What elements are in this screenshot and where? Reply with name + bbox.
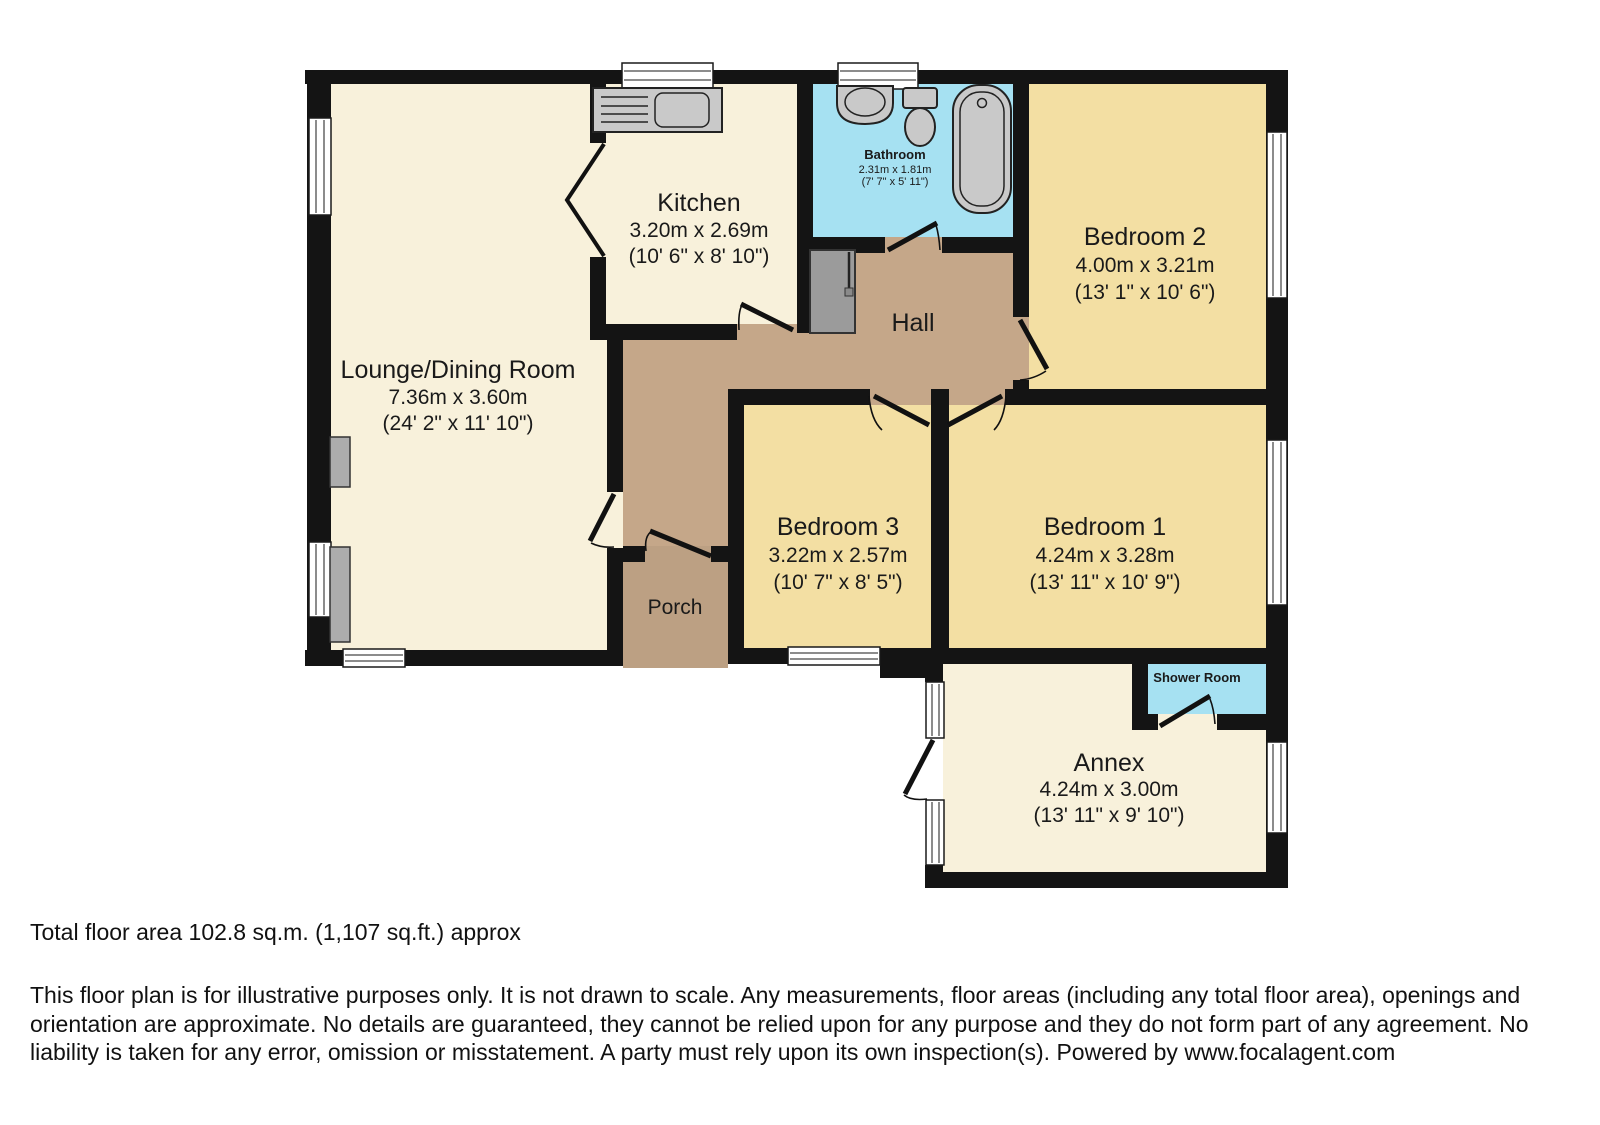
hall-floor-strip [797, 333, 813, 340]
wall-porch-divider-b [711, 546, 728, 562]
lounge-dim-ft: (24' 2" x 11' 10") [383, 412, 534, 435]
hall-floor-corridor [623, 340, 1013, 389]
kitchen-sink-unit [593, 88, 722, 132]
annex-window-west-upper [926, 682, 944, 738]
wall-bedrooms-north-c [1005, 389, 1268, 405]
wall-bedroom3-west [728, 389, 744, 664]
kitchen-dim-m: 3.20m x 2.69m [630, 219, 769, 242]
floorplan-drawing: Lounge/Dining Room 7.36m x 3.60m (24' 2"… [0, 0, 1600, 1120]
bathtub [953, 85, 1011, 213]
floorplan: Lounge/Dining Room 7.36m x 3.60m (24' 2"… [0, 0, 1600, 1120]
wall-shower-south-a [1132, 714, 1158, 730]
wall-annex-south [925, 872, 1288, 888]
porch-label: Porch [648, 596, 703, 619]
kitchen-dim-ft: (10' 6" x 8' 10") [629, 245, 770, 268]
annex-dim-m: 4.24m x 3.00m [1040, 778, 1179, 801]
lounge-window-south [343, 649, 405, 667]
bedroom1-window-east [1267, 440, 1287, 605]
bedroom2-label: Bedroom 2 [1084, 223, 1206, 251]
wall-bedrooms-north-a [728, 389, 870, 405]
disclaimer-text: This floor plan is for illustrative purp… [30, 981, 1552, 1067]
annex-entrance-door [904, 740, 933, 800]
wall-hall-west-b [607, 548, 623, 666]
bedroom3-window-south [788, 647, 880, 665]
wall-north [305, 70, 1288, 84]
bedroom2-window-east [1267, 132, 1287, 298]
lounge-dim-m: 7.36m x 3.60m [389, 386, 528, 409]
wall-bathroom-south-b [942, 237, 1013, 253]
bedroom3-dim-ft: (10' 7" x 8' 5") [773, 571, 902, 594]
hall-floor-vertical [623, 389, 728, 546]
annex-window-east [1267, 742, 1287, 833]
total-floor-area: Total floor area 102.8 sq.m. (1,107 sq.f… [30, 919, 521, 946]
shower-room-label: Shower Room [1153, 670, 1240, 685]
lounge-window-west-lower [309, 542, 331, 617]
wall-bedroom-divider [931, 389, 949, 650]
bedroom1-label: Bedroom 1 [1044, 513, 1166, 541]
wall-porch-divider-a [623, 546, 645, 562]
hall-label: Hall [891, 309, 934, 337]
bedroom2-dim-ft: (13' 1" x 10' 6") [1075, 281, 1216, 304]
bathroom-label: Bathroom [864, 147, 925, 162]
kitchen-label: Kitchen [657, 189, 740, 217]
bedroom1-dim-m: 4.24m x 3.28m [1036, 544, 1175, 567]
chimney-breast-upper [330, 437, 350, 487]
lounge-window-west-upper [309, 118, 331, 215]
wall-hall-west-a [607, 324, 623, 492]
bedroom3-label: Bedroom 3 [777, 513, 899, 541]
kitchen-window-north [622, 63, 713, 89]
bedroom3-dim-m: 3.22m x 2.57m [769, 544, 908, 567]
wall-hall-east-a [1013, 84, 1029, 317]
wall-annex-west-a [925, 650, 943, 682]
bathroom-basin [837, 86, 893, 124]
storage-cupboard [810, 250, 855, 333]
lounge-label: Lounge/Dining Room [341, 356, 576, 384]
bathroom-dim-ft: (7' 7" x 5' 11") [862, 176, 929, 188]
bathroom-dim-m: 2.31m x 1.81m [859, 164, 932, 176]
toilet [903, 88, 937, 146]
annex-window-west-lower [926, 800, 944, 865]
bedroom2-dim-m: 4.00m x 3.21m [1076, 254, 1215, 277]
annex-label: Annex [1074, 749, 1145, 777]
annex-dim-ft: (13' 11" x 9' 10") [1034, 804, 1185, 827]
wall-shower-south-b [1217, 714, 1268, 730]
chimney-breast-lower [330, 547, 350, 642]
bedroom1-dim-ft: (13' 11" x 10' 9") [1030, 571, 1181, 594]
